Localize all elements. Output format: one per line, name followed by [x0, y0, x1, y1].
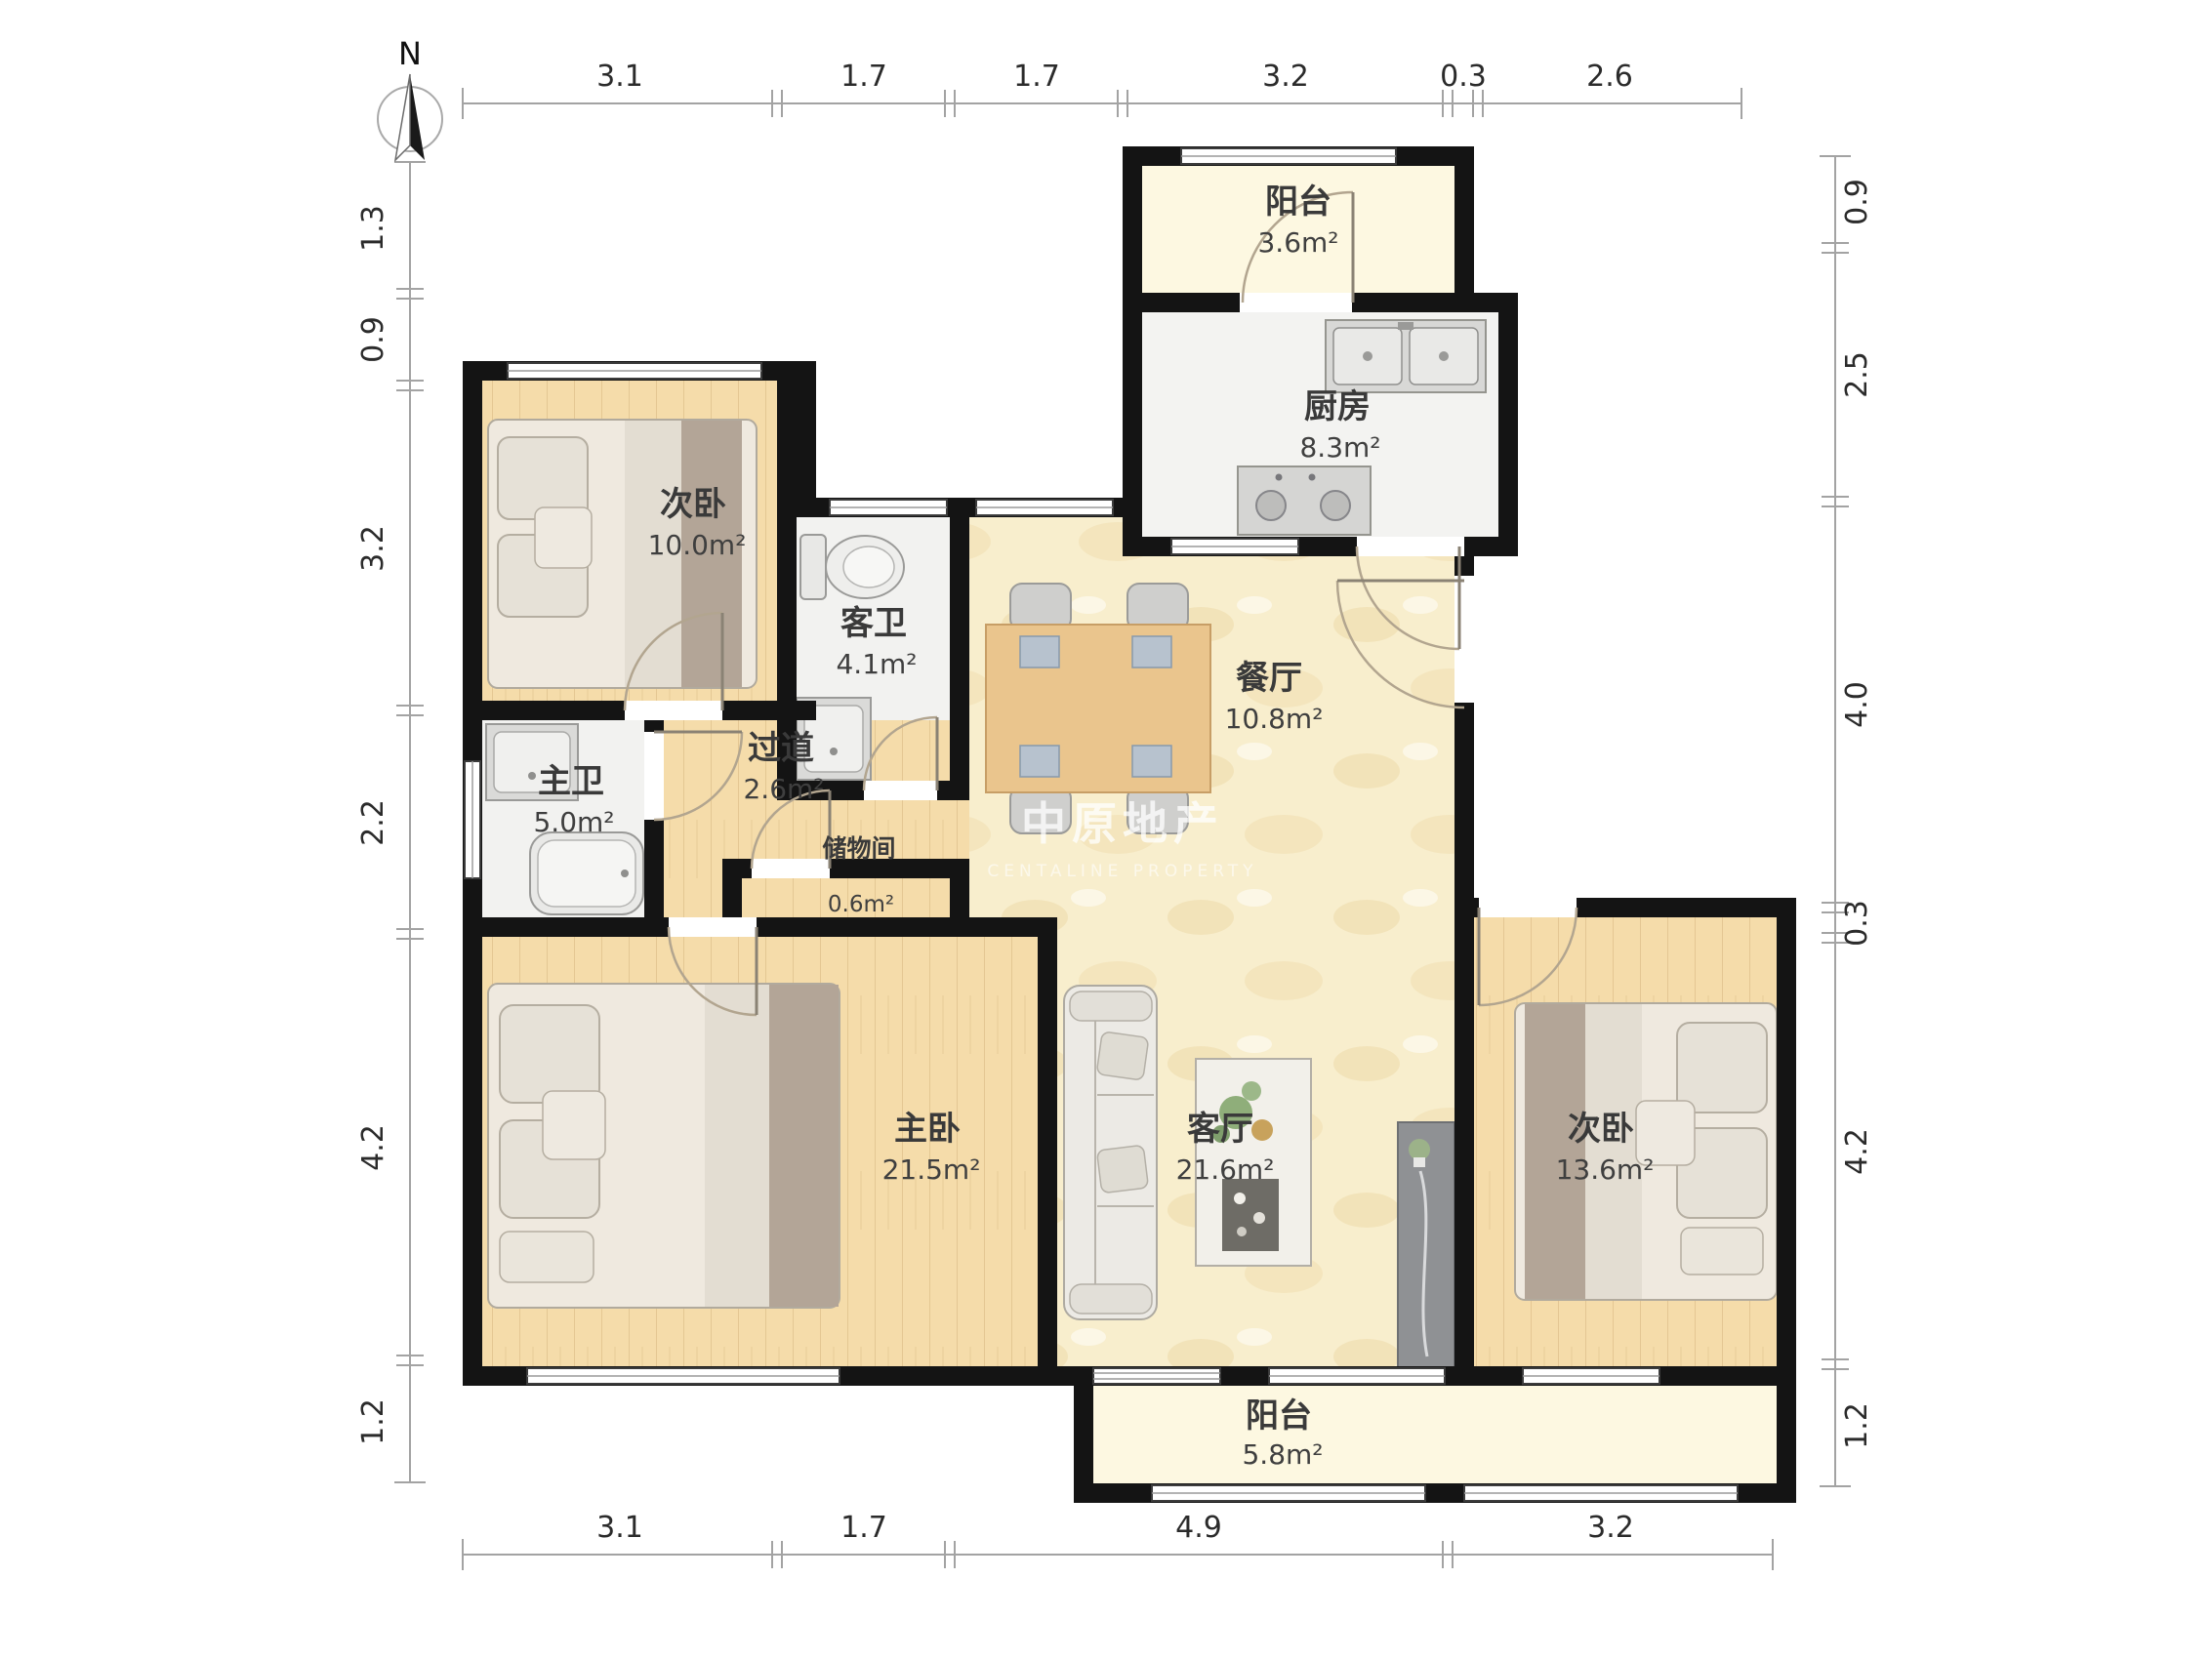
window-bedroom-right — [1523, 1368, 1659, 1384]
balcony-bottom-label: 阳台 — [1246, 1396, 1312, 1436]
bathtub-icon — [530, 832, 643, 914]
balcony-top-label: 阳台 — [1265, 182, 1331, 222]
toilet-icon — [800, 535, 904, 599]
dim-top-3: 3.2 — [1262, 60, 1309, 94]
dim-bottom-3: 3.2 — [1587, 1511, 1634, 1545]
dim-left-2: 3.2 — [356, 525, 390, 572]
window-master-bath — [465, 761, 480, 878]
dim-bottom-0: 3.1 — [596, 1511, 643, 1545]
dim-right-2: 4.0 — [1840, 681, 1874, 728]
dim-left-3: 2.2 — [356, 799, 390, 846]
dim-top-1: 1.7 — [840, 60, 887, 94]
watermark-subbrand: CENTALINE PROPERTY — [987, 862, 1257, 881]
bedroom-right-label: 次卧 — [1568, 1110, 1634, 1149]
bedroom-right-door-gap — [1479, 898, 1577, 917]
compass: N — [378, 35, 442, 160]
dim-left-1: 0.9 — [356, 316, 390, 363]
guest-bath-label: 客卫 — [840, 604, 907, 643]
storage-area: 0.6m² — [828, 892, 894, 917]
floorplan-svg: 中原地产 CENTALINE PROPERTY 阳台 3.6m² 厨房 8.3m… — [0, 0, 2212, 1659]
guest-bath-door-gap — [864, 781, 937, 800]
north-label: N — [398, 35, 422, 72]
tv-cabinet — [1398, 1122, 1454, 1378]
dining-area: 10.8m² — [1225, 703, 1324, 735]
floorplan-canvas: 中原地产 CENTALINE PROPERTY 阳台 3.6m² 厨房 8.3m… — [0, 0, 2212, 1659]
balcony-bottom-area: 5.8m² — [1242, 1438, 1323, 1471]
window-bedroom-top-left — [508, 363, 761, 379]
kitchen-area: 8.3m² — [1299, 431, 1380, 464]
dim-bottom-1: 1.7 — [840, 1511, 887, 1545]
master-bedroom-label: 主卧 — [894, 1110, 961, 1149]
dim-top-2: 1.7 — [1013, 60, 1060, 94]
balcony-bottom-floor — [1093, 1386, 1777, 1483]
watermark: 中原地产 CENTALINE PROPERTY — [987, 797, 1257, 881]
bedroom-right-area: 13.6m² — [1556, 1153, 1655, 1186]
dim-right-5: 1.2 — [1840, 1402, 1874, 1449]
master-bedroom-door-gap — [669, 917, 757, 937]
kitchen-sink-icon — [1326, 320, 1486, 392]
stove-icon — [1238, 466, 1371, 535]
storage-label: 储物间 — [822, 834, 895, 863]
window-living — [1269, 1368, 1445, 1384]
kitchen-door-gap — [1357, 537, 1464, 556]
dim-left-0: 1.3 — [356, 205, 390, 252]
dim-left-5: 1.2 — [356, 1398, 390, 1445]
window-guest-bath — [830, 500, 947, 515]
dim-top-0: 3.1 — [596, 60, 643, 94]
hallway-area: 2.6m² — [743, 773, 824, 805]
living-label: 客厅 — [1187, 1110, 1253, 1149]
balcony-slider-door — [1093, 1368, 1220, 1384]
hallway-label: 过道 — [748, 729, 814, 768]
master-bedroom-area: 21.5m² — [882, 1153, 981, 1186]
master-bath-label: 主卫 — [538, 762, 604, 801]
dim-right-3: 0.3 — [1840, 900, 1874, 947]
dining-french-door-gap — [1454, 576, 1474, 703]
bedroom-top-left-area: 10.0m² — [648, 529, 747, 561]
window-balcony-bottom-left — [1152, 1485, 1425, 1501]
dim-top-5: 2.6 — [1586, 60, 1633, 94]
master-bath-area: 5.0m² — [533, 806, 614, 838]
balcony-top-area: 3.6m² — [1257, 226, 1338, 259]
window-mid-top — [976, 500, 1113, 515]
bed-right — [1515, 1003, 1777, 1300]
dim-bottom-2: 4.9 — [1175, 1511, 1222, 1545]
living-area: 21.6m² — [1176, 1153, 1275, 1186]
dim-left-4: 4.2 — [356, 1124, 390, 1171]
dim-right-0: 0.9 — [1840, 179, 1874, 225]
window-balcony-bottom-right — [1464, 1485, 1738, 1501]
window-kitchen — [1171, 539, 1298, 554]
storage-door-gap — [752, 859, 830, 878]
window-master-bedroom — [527, 1368, 840, 1384]
master-bed — [488, 984, 840, 1308]
dim-right-4: 4.2 — [1840, 1128, 1874, 1175]
kitchen-label: 厨房 — [1304, 387, 1371, 426]
bedroom-top-left-label: 次卧 — [660, 485, 726, 524]
watermark-brand: 中原地产 — [1021, 797, 1224, 850]
guest-bath-area: 4.1m² — [836, 648, 917, 680]
dining-label: 餐厅 — [1236, 659, 1302, 698]
balcony-kitchen-door-gap — [1240, 293, 1352, 312]
dim-right-1: 2.5 — [1840, 351, 1874, 398]
bedroom-top-left-door-gap — [625, 701, 722, 720]
dim-top-4: 0.3 — [1440, 60, 1487, 94]
master-bath-door-gap — [644, 732, 664, 820]
sofa — [1064, 986, 1157, 1319]
window-balcony-top — [1181, 148, 1396, 164]
